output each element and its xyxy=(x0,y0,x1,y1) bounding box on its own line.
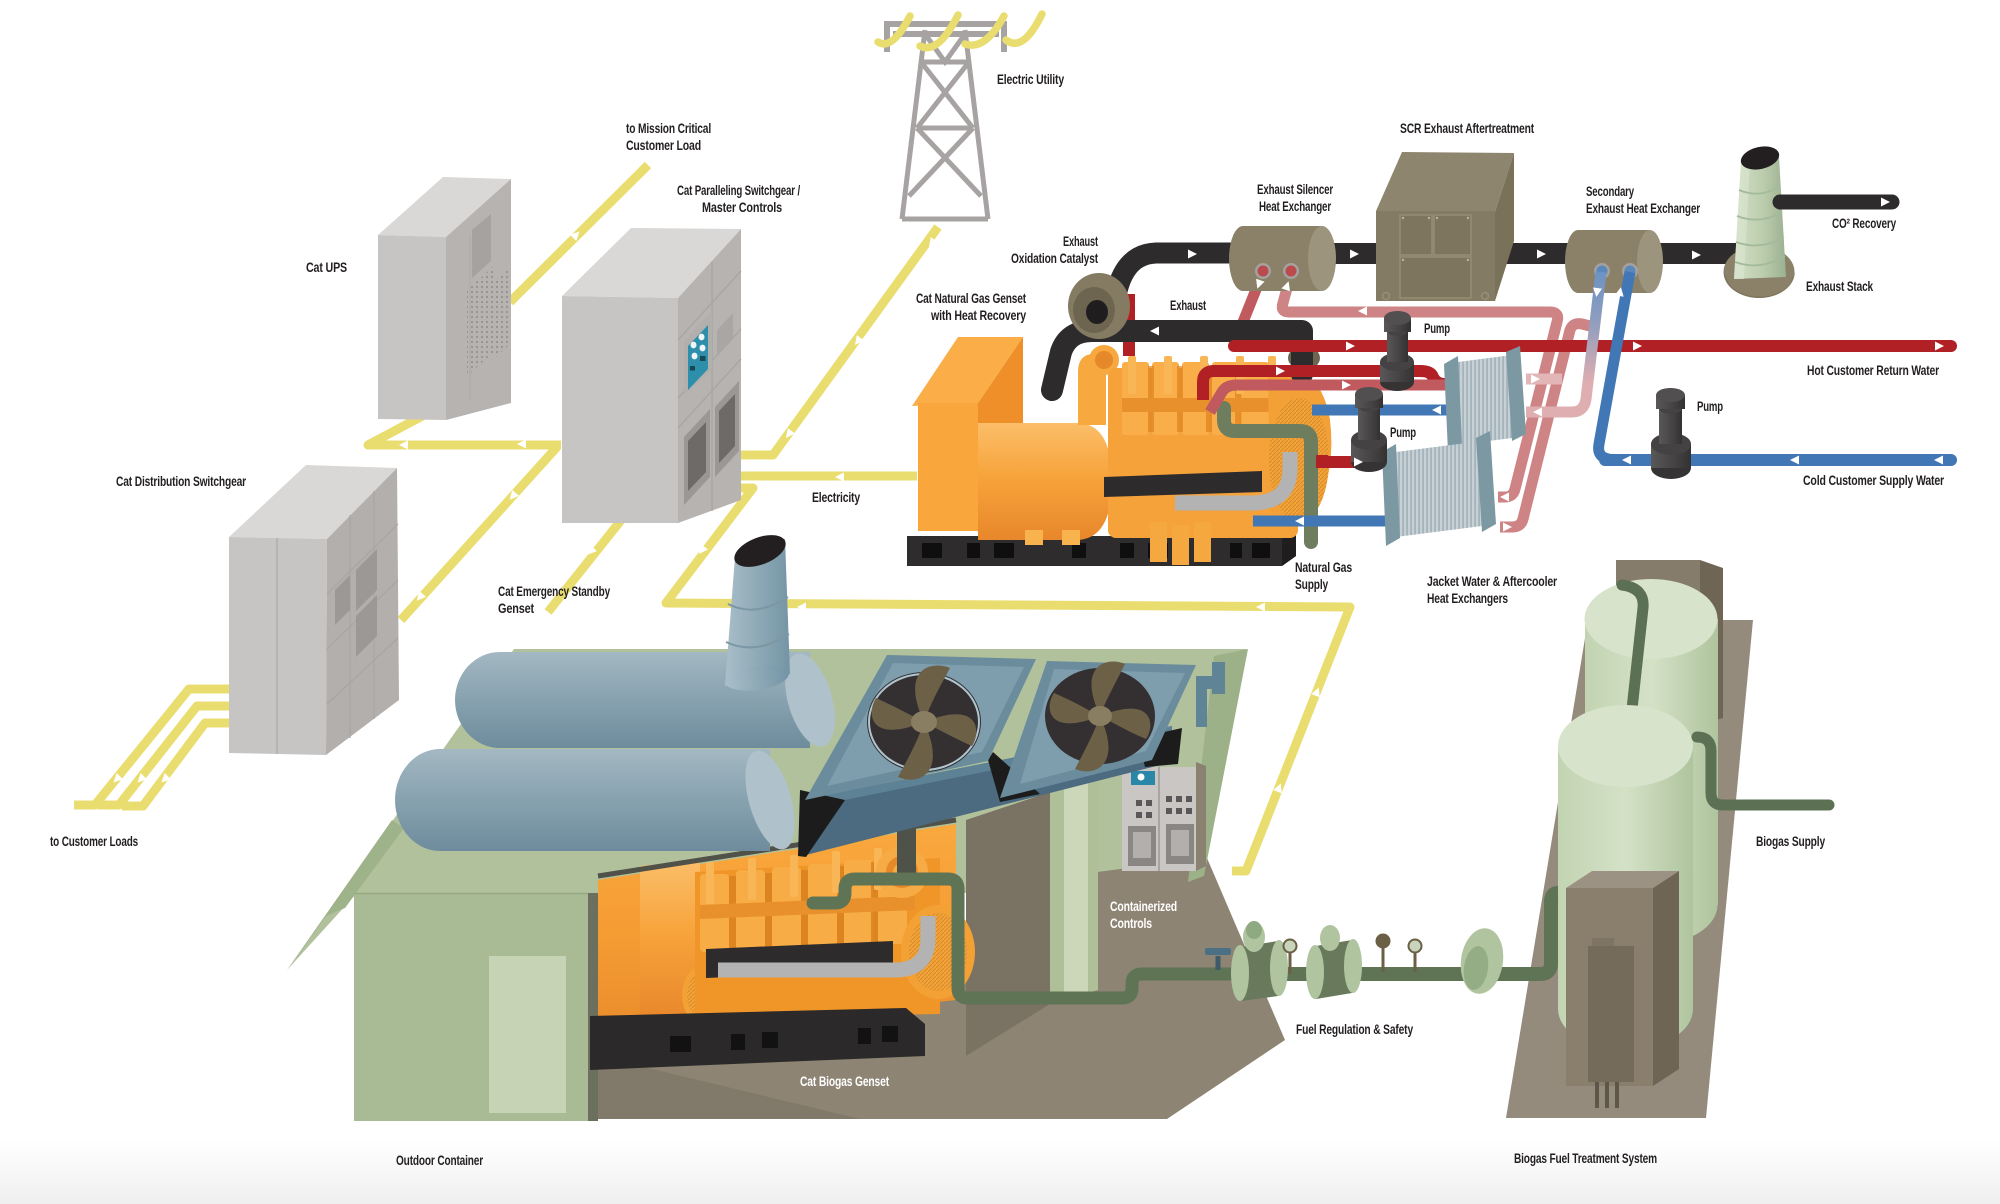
svg-text:Hot Customer Return Water: Hot Customer Return Water xyxy=(1807,363,1940,378)
svg-text:Cold Customer Supply Water: Cold Customer Supply Water xyxy=(1803,473,1945,488)
svg-text:Biogas Supply: Biogas Supply xyxy=(1756,834,1826,849)
svg-text:Heat Exchanger: Heat Exchanger xyxy=(1259,199,1332,214)
svg-text:Cat Distribution Switchgear: Cat Distribution Switchgear xyxy=(116,474,247,489)
svg-text:Fuel Regulation & Safety: Fuel Regulation & Safety xyxy=(1296,1022,1414,1037)
svg-text:Containerized: Containerized xyxy=(1110,899,1177,914)
svg-text:Cat UPS: Cat UPS xyxy=(306,260,347,275)
svg-text:Jacket Water & Aftercooler: Jacket Water & Aftercooler xyxy=(1427,574,1558,589)
svg-text:Electric Utility: Electric Utility xyxy=(997,72,1065,87)
svg-text:Cat Natural Gas Genset: Cat Natural Gas Genset xyxy=(916,291,1027,306)
svg-text:Pump: Pump xyxy=(1424,321,1450,336)
svg-text:Outdoor Container: Outdoor Container xyxy=(396,1153,484,1168)
svg-text:Master Controls: Master Controls xyxy=(702,200,782,215)
svg-text:Pump: Pump xyxy=(1390,425,1416,440)
svg-text:to Mission Critical: to Mission Critical xyxy=(626,121,711,136)
svg-text:Exhaust Stack: Exhaust Stack xyxy=(1806,279,1874,294)
svg-text:Exhaust Silencer: Exhaust Silencer xyxy=(1257,182,1334,197)
svg-text:Exhaust: Exhaust xyxy=(1170,298,1206,313)
svg-text:Biogas Fuel Treatment System: Biogas Fuel Treatment System xyxy=(1514,1151,1657,1166)
svg-text:Customer Load: Customer Load xyxy=(626,138,701,153)
svg-text:Exhaust Heat Exchanger: Exhaust Heat Exchanger xyxy=(1586,201,1701,216)
svg-text:Natural Gas: Natural Gas xyxy=(1295,560,1352,575)
svg-text:with Heat Recovery: with Heat Recovery xyxy=(930,308,1026,323)
svg-text:Heat Exchangers: Heat Exchangers xyxy=(1427,591,1508,606)
svg-text:Exhaust: Exhaust xyxy=(1063,234,1098,249)
svg-text:Pump: Pump xyxy=(1697,399,1723,414)
svg-text:CO² Recovery: CO² Recovery xyxy=(1832,216,1897,231)
svg-text:Genset: Genset xyxy=(498,601,535,616)
svg-text:Cat Emergency Standby: Cat Emergency Standby xyxy=(498,584,611,599)
svg-text:Controls: Controls xyxy=(1110,916,1152,931)
svg-text:Oxidation Catalyst: Oxidation Catalyst xyxy=(1011,251,1099,266)
svg-text:to Customer Loads: to Customer Loads xyxy=(50,834,138,849)
svg-text:Cat Biogas Genset: Cat Biogas Genset xyxy=(800,1074,890,1089)
svg-text:Electricity: Electricity xyxy=(812,490,861,505)
svg-text:Supply: Supply xyxy=(1295,577,1329,592)
svg-text:Secondary: Secondary xyxy=(1586,184,1634,199)
svg-text:SCR Exhaust Aftertreatment: SCR Exhaust Aftertreatment xyxy=(1400,121,1535,136)
svg-text:Cat Paralleling Switchgear /: Cat Paralleling Switchgear / xyxy=(677,183,800,198)
